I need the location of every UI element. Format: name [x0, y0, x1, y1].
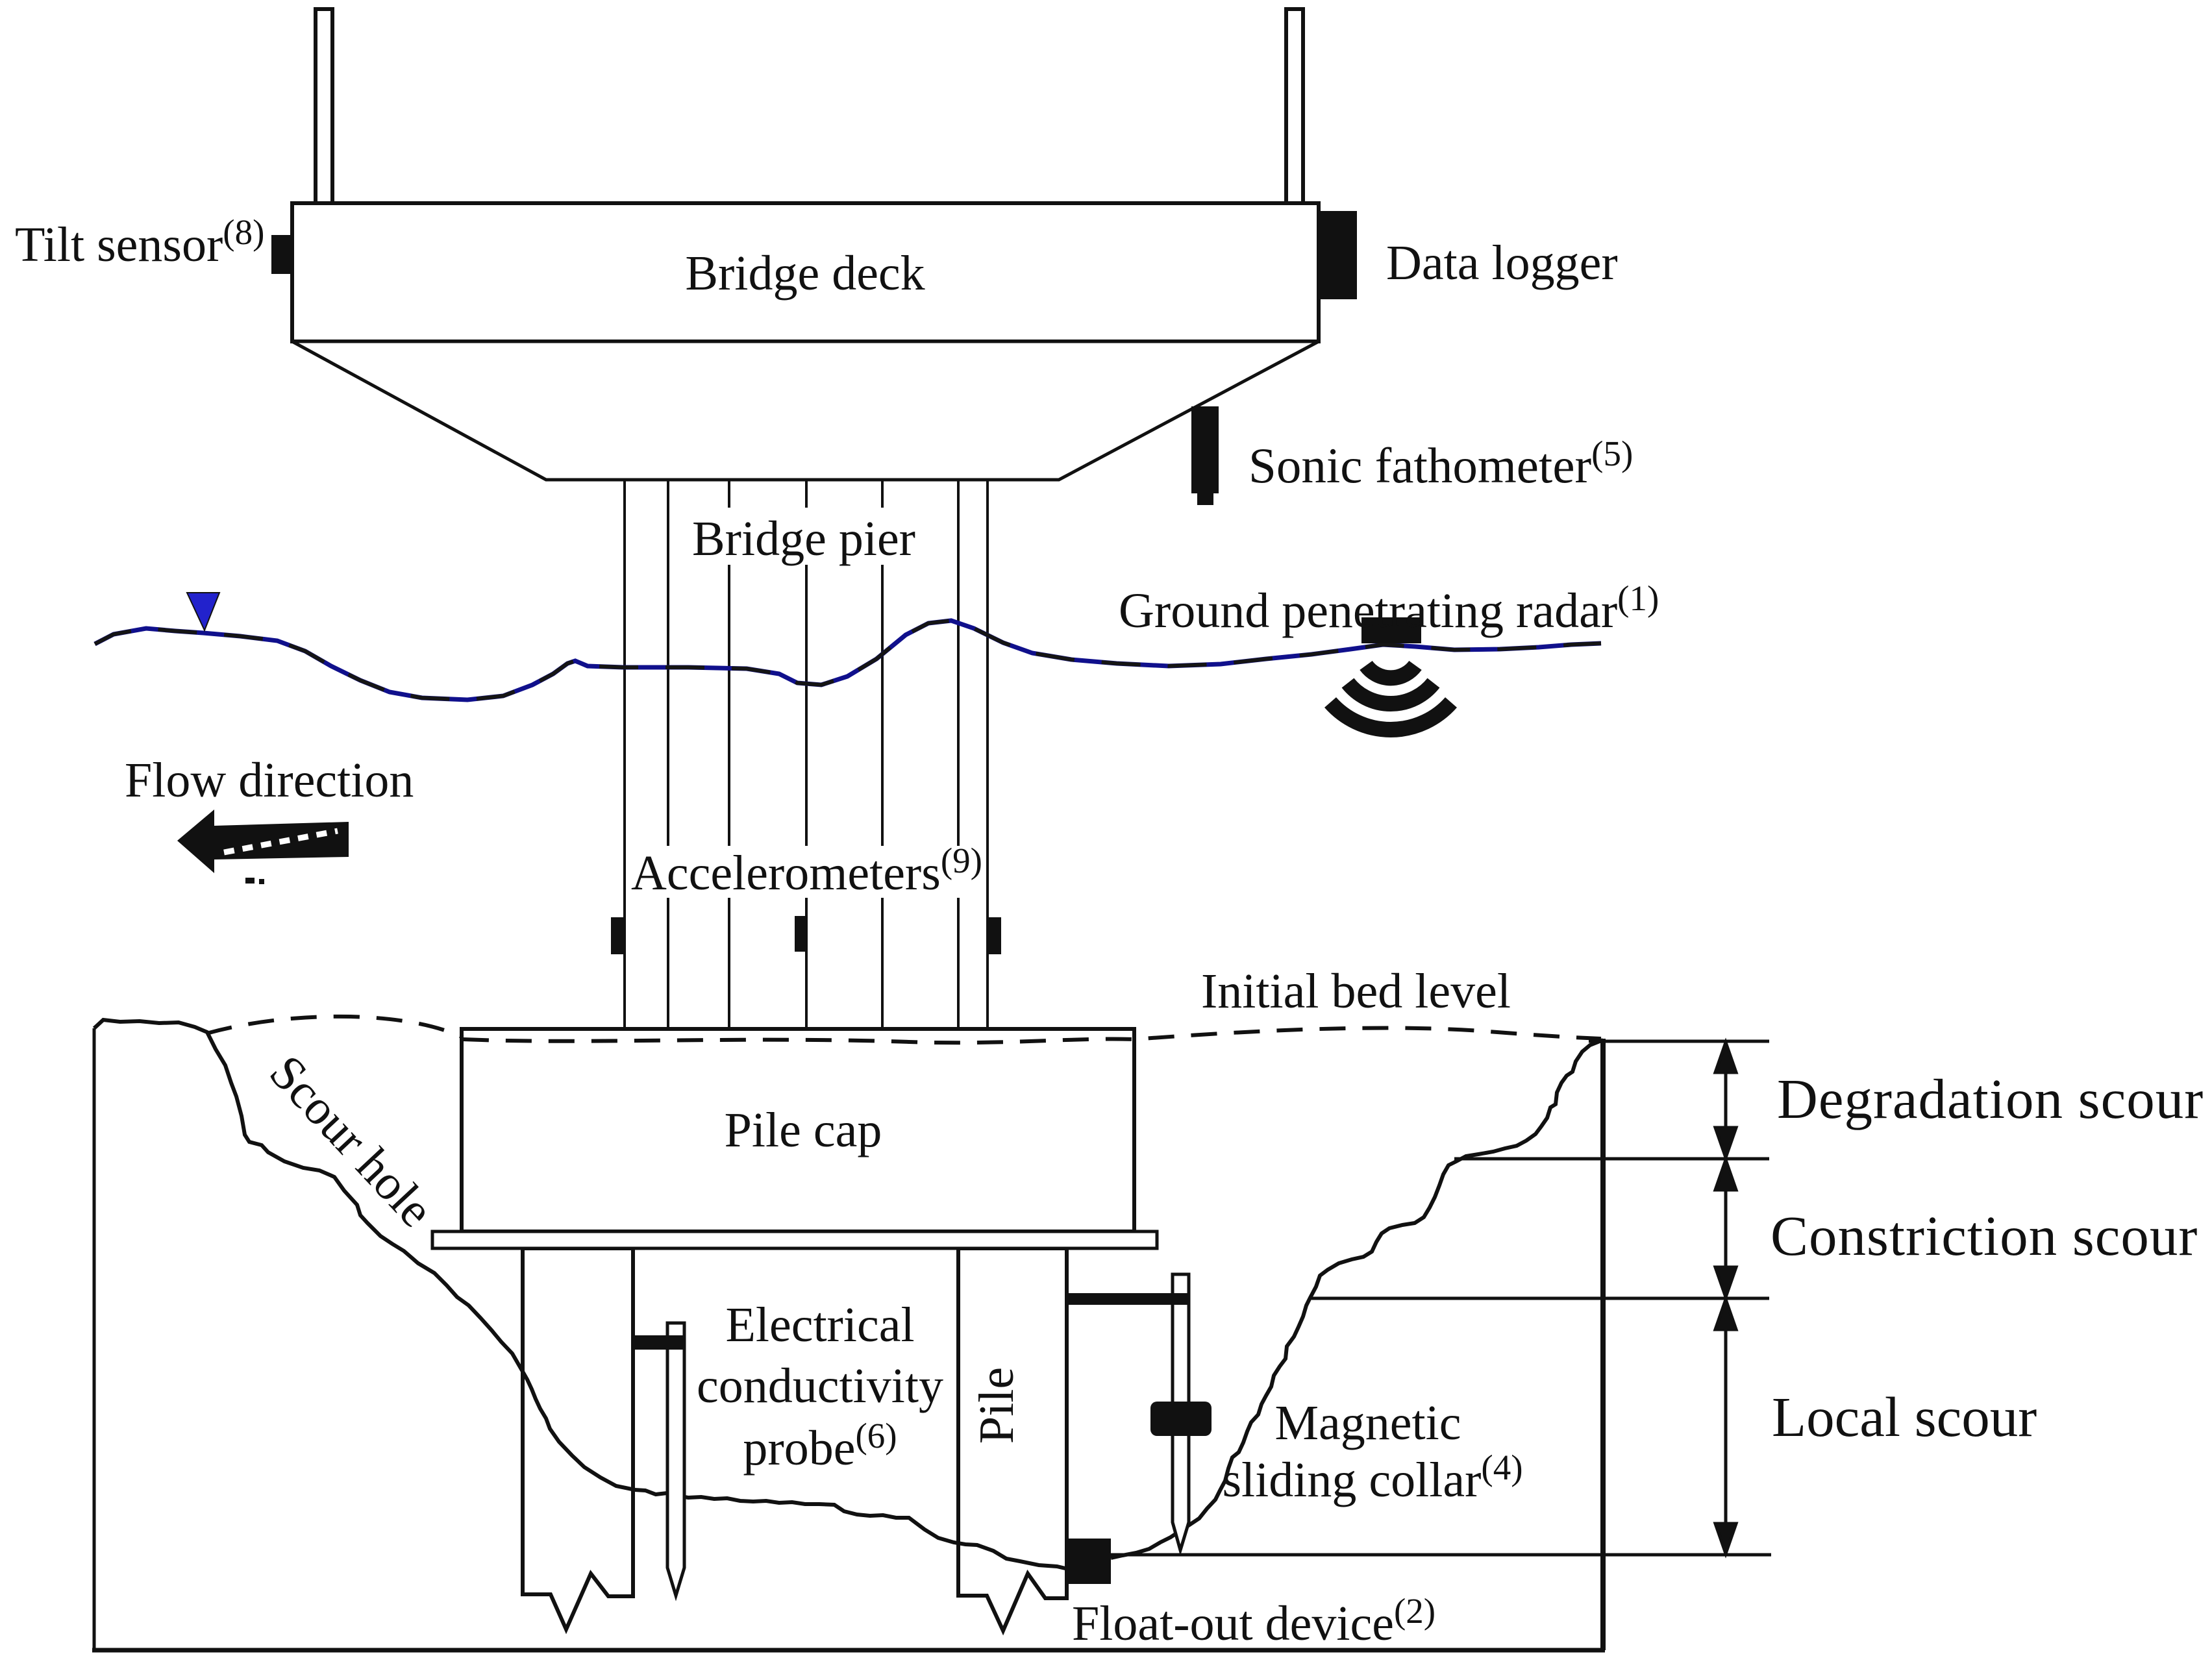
svg-text:conductivity: conductivity — [697, 1359, 943, 1413]
svg-text:Bridge pier: Bridge pier — [692, 512, 915, 566]
svg-text:Float-out device(2): Float-out device(2) — [1072, 1591, 1435, 1651]
svg-text:Constriction scour: Constriction scour — [1771, 1204, 2198, 1267]
svg-text:Pile cap: Pile cap — [725, 1103, 882, 1157]
svg-text:Local scour: Local scour — [1772, 1385, 2037, 1448]
svg-text:Data logger: Data logger — [1386, 236, 1618, 290]
svg-text:Magnetic: Magnetic — [1274, 1396, 1461, 1450]
svg-text:Degradation scour: Degradation scour — [1777, 1067, 2204, 1130]
svg-text:sliding collar(4): sliding collar(4) — [1222, 1448, 1522, 1507]
svg-text:Flow direction: Flow direction — [125, 753, 414, 808]
svg-text:Bridge deck: Bridge deck — [685, 246, 925, 301]
svg-text:Accelerometers(9): Accelerometers(9) — [631, 841, 982, 900]
svg-text:Sonic fathometer(5): Sonic fathometer(5) — [1249, 434, 1633, 493]
svg-text:Ground penetrating radar(1): Ground penetrating radar(1) — [1119, 578, 1659, 638]
svg-text:Electrical: Electrical — [725, 1298, 914, 1352]
svg-text:Initial bed level: Initial bed level — [1201, 964, 1511, 1019]
svg-text:Pile: Pile — [969, 1367, 1024, 1444]
